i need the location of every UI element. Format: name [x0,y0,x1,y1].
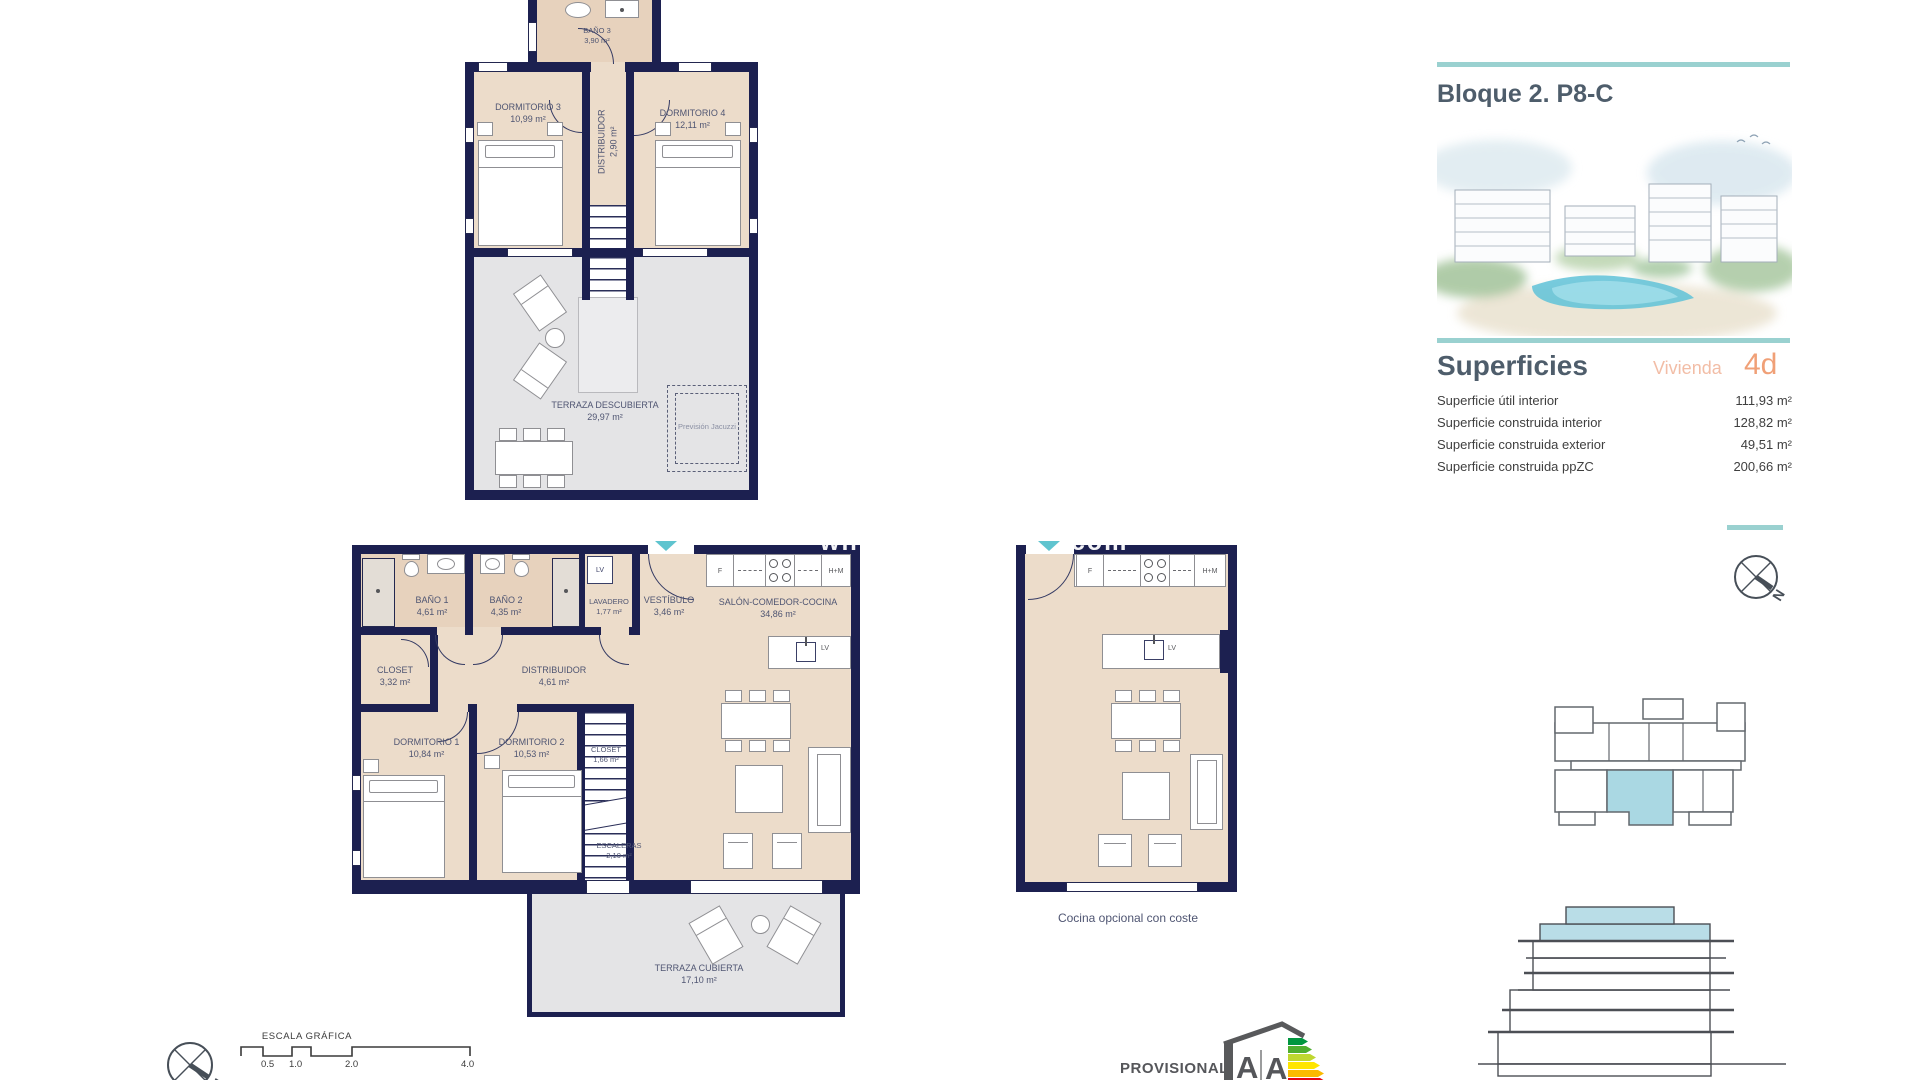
room-area: 2,10 m² [587,851,651,861]
chair-icon [523,428,541,441]
superficies-heading: Superficies [1437,350,1588,382]
fridge-label: F [1088,568,1092,575]
chair-icon [773,690,790,702]
bed-icon [478,140,563,246]
energy-rating-icon: A A [1220,1006,1328,1080]
room-area: 1,77 m² [579,607,639,617]
room-name: DORMITORIO 4 [645,108,740,120]
door-opening [437,627,465,635]
room-label-terraza-descubierta: TERRAZA DESCUBIERTA 29,97 m² [525,400,685,423]
room-label-bano1: BAÑO 1 4,61 m² [397,595,467,618]
counter-dash [1173,570,1191,571]
scale-title-text: ESCALA GRÁFICA [262,1031,352,1042]
window [478,62,508,72]
terrace-wall [840,894,845,1017]
provisional-label: PROVISIONAL [1120,1060,1229,1077]
chair-icon [773,740,790,752]
room-area: 12,11 m² [645,120,740,132]
counter-dash [798,570,818,571]
room-label-terraza-cubierta: TERRAZA CUBIERTA 17,10 m² [619,963,779,986]
terrace-wall [527,894,532,1017]
window [507,248,573,257]
north-compass-icon: N [1728,550,1818,614]
room-name: DISTRIBUIDOR [514,665,594,677]
shower-icon [552,558,580,627]
optional-kitchen-plan: F H+M LV Cocina opcional con coste [1016,539,1240,929]
island-sink-icon [1144,640,1164,660]
sink-icon [480,554,505,574]
stair-void [578,297,638,393]
room-label-closet2: CLOSET 1,66 m² [583,745,629,765]
oven-label: H+M [829,568,844,575]
terrace-wall [527,1012,845,1017]
chair-icon [1163,690,1180,702]
room-name: DORMITORIO 1 [379,737,474,749]
room-area: 10,84 m² [379,749,474,761]
accent-line-short [1727,525,1783,530]
room-name: TERRAZA DESCUBIERTA [525,400,685,412]
window [528,22,537,52]
room-name: CLOSET [583,745,629,755]
door-opening [601,627,629,635]
superficie-value: 111,93 m² [1735,393,1792,408]
unit-title-text: Bloque 2. P8-C [1437,80,1613,108]
chair-icon [1139,690,1156,702]
energy-letter-a2: A [1265,1051,1287,1080]
chair-icon [725,690,742,702]
watermark-part2: .com [1062,528,1128,556]
shower-icon [605,0,639,18]
upper-floor-plan: BAÑO 3 3,90 m² DORMITORIO 3 10,99 m² [465,0,760,506]
window [749,218,758,234]
armchair-icon [723,833,753,869]
sink-icon [565,2,591,18]
wall [352,545,361,894]
highlight-floor-top [1566,907,1674,924]
chair-icon [1115,740,1132,752]
bed-icon [502,770,582,873]
floorplan-sheet: { "watermark": { "part1": "whit", "part2… [0,0,1920,1080]
superficies-heading-text: Superficies [1437,350,1588,381]
chair-icon [499,428,517,441]
room-label-dormitorio1: DORMITORIO 1 10,84 m² [379,737,474,760]
dining-table-icon [1111,703,1181,739]
room-label-escaleras: ESCALERAS 2,10 m² [587,841,651,861]
lv-label: LV [1168,645,1176,652]
island-sink-icon [796,642,816,662]
chair-icon [749,690,766,702]
optional-plan-caption: Cocina opcional con coste [1048,911,1208,925]
room-name: ESCALERAS [587,841,651,851]
coffee-table-icon [735,765,783,813]
dishwasher-label: LV [1168,645,1176,652]
jacuzzi-label: Previsión Jacuzzi [670,422,744,432]
lv-label: LV [821,645,829,652]
room-name: SALÓN-COMEDOR-COCINA [708,597,848,609]
superficie-label: Superficie útil interior [1437,393,1558,408]
wall [626,72,634,300]
room-area: 4,61 m² [397,607,467,619]
superficie-value: 200,66 m² [1733,459,1792,474]
room-name: DORMITORIO 2 [484,737,579,749]
room-area: 29,97 m² [525,412,685,424]
wall [1016,545,1025,892]
chair-icon [1139,740,1156,752]
room-name: VESTÍBULO [637,595,701,607]
toilet-icon [404,561,419,577]
entry-marker-icon [1038,541,1060,551]
round-table-icon [751,915,770,934]
room-name: DORMITORIO 3 [483,102,573,114]
unit-title: Bloque 2. P8-C [1437,80,1613,109]
accent-line [1437,62,1790,67]
key-plan-diagram [1543,683,1765,831]
oven-micro-icon: H+M [1194,554,1226,587]
highlight-floor [1540,924,1710,941]
wall-pier [1220,630,1232,673]
washer-label: LV [596,567,604,574]
room-name: CLOSET [363,665,427,677]
superficie-label: Superficie construida interior [1437,415,1602,430]
nightstand-icon [363,759,379,773]
window [678,62,712,72]
terrace-door [586,880,630,894]
chair-icon [547,428,565,441]
building-render-image [1437,118,1792,336]
room-area: 10,53 m² [484,749,579,761]
unit-highlight [1607,770,1673,825]
room-area: 3,32 m² [363,677,427,689]
room-area: 10,99 m² [483,114,573,126]
toilet-icon [512,554,530,560]
compass-n-label: N [1769,587,1788,604]
room-name: BAÑO 2 [473,595,539,607]
vivienda-label-text: Vivienda [1653,358,1722,378]
counter-dash [738,570,762,571]
vivienda-code-text: 4d [1744,348,1777,381]
room-label-salon: SALÓN-COMEDOR-COCINA 34,86 m² [708,597,848,620]
room-label-bano2: BAÑO 2 4,35 m² [473,595,539,618]
room-name: BAÑO 1 [397,595,467,607]
fridge-icon: F [1076,554,1104,587]
room-name: DISTRIBUIDOR [596,99,608,185]
watermark-part1: whit [820,528,878,556]
room-area: 34,86 m² [708,609,848,621]
dining-table-icon [495,441,573,475]
vivienda-label: Vivienda [1653,358,1722,379]
room-area: 1,66 m² [583,755,629,765]
washer-icon: LV [587,556,613,584]
oven-micro-icon: H+M [821,554,851,587]
wall [582,72,590,300]
stairs-icon [590,205,626,248]
room-name: Previsión Jacuzzi [670,422,744,432]
superficie-row: Superficie construida exterior 49,51 m² [1437,437,1792,452]
room-label-closet1: CLOSET 3,32 m² [363,665,427,688]
superficie-label: Superficie construida ppZC [1437,459,1594,474]
room-label-dormitorio2: DORMITORIO 2 10,53 m² [484,737,579,760]
sink-icon [427,554,465,574]
superficie-row: Superficie construida interior 128,82 m² [1437,415,1792,430]
chair-icon [499,475,517,488]
room-area: 4,35 m² [473,607,539,619]
door-opening [473,627,501,635]
window [749,127,758,143]
door-opening [438,704,468,712]
round-table-icon [545,328,565,348]
chair-icon [523,475,541,488]
room-name: LAVADERO [579,597,639,607]
armchair-icon [772,833,802,869]
energy-letter-a1: A [1236,1050,1258,1080]
room-name: TERRAZA CUBIERTA [619,963,779,975]
window [352,850,361,866]
caption-text: Cocina opcional con coste [1058,911,1198,925]
room-area: 4,61 m² [514,677,594,689]
toilet-icon [514,561,529,577]
window [465,218,474,234]
sliding-window [690,880,823,894]
scale-tick: 2.0 [345,1059,358,1070]
scale-tick: 1.0 [289,1059,302,1070]
armchair-icon [1098,834,1132,867]
accent-line [1437,338,1790,343]
room-label-dormitorio4: DORMITORIO 4 12,11 m² [645,108,740,131]
door-opening [477,704,517,712]
room-label-vestibulo: VESTÍBULO 3,46 m² [637,595,701,618]
superficie-row: Superficie construida ppZC 200,66 m² [1437,459,1792,474]
room-label-distribuidor: DISTRIBUIDOR 2,90 m² [596,99,619,185]
shower-icon [362,558,395,627]
energy-arrows [1288,1038,1326,1080]
wall [352,545,860,554]
coffee-table-icon [1122,772,1170,820]
sofa-icon [1190,754,1223,830]
dishwasher-label: LV [821,645,829,652]
armchair-icon [1148,834,1182,867]
stairs-icon [590,257,626,297]
sofa-icon [808,747,851,833]
superficie-value: 128,82 m² [1733,415,1792,430]
room-label-distribuidor: DISTRIBUIDOR 4,61 m² [514,665,594,688]
sliding-window [1066,882,1198,892]
room-area: 2,90 m² [608,99,620,185]
entry-marker-icon [655,541,677,551]
wall [851,545,860,894]
wall [652,0,661,66]
bed-icon [363,775,445,878]
window [352,775,361,791]
chair-icon [1163,740,1180,752]
oven-label: H+M [1203,568,1218,575]
elevation-diagram [1478,880,1790,1080]
counter-dash [1108,570,1136,571]
window [642,248,708,257]
room-label-dormitorio3: DORMITORIO 3 10,99 m² [483,102,573,125]
window [465,127,474,143]
superficie-row: Superficie útil interior 111,93 m² [1437,393,1792,408]
vivienda-code: 4d [1744,348,1777,382]
fridge-icon: F [706,554,734,587]
main-floor-plan: LV F H+M LV BAÑO 1 4,61 m² BAÑO 2 [349,539,865,1017]
room-label-lavadero: LAVADERO 1,77 m² [579,597,639,617]
wall [1228,545,1237,892]
toilet-icon [402,554,420,560]
scale-tick: 0.5 [261,1059,274,1070]
stove-icon [1140,554,1170,587]
watermark-text: whit [820,528,878,557]
scale-tick: 4.0 [461,1059,474,1070]
chair-icon [1115,690,1132,702]
superficie-value: 49,51 m² [1741,437,1792,452]
scale-title: ESCALA GRÁFICA [247,1031,367,1042]
dining-table-icon [721,703,791,739]
wall [465,490,758,500]
chair-icon [547,475,565,488]
bed-icon [655,140,741,246]
watermark-text: .com [1062,528,1128,557]
provisional-text: PROVISIONAL [1120,1060,1229,1077]
stove-icon [765,554,795,587]
compass-n-label: N [208,1076,227,1080]
fridge-label: F [718,568,722,575]
chair-icon [725,740,742,752]
room-area: 17,10 m² [619,975,779,987]
chair-icon [749,740,766,752]
room-area: 3,46 m² [637,607,701,619]
superficie-label: Superficie construida exterior [1437,437,1605,452]
